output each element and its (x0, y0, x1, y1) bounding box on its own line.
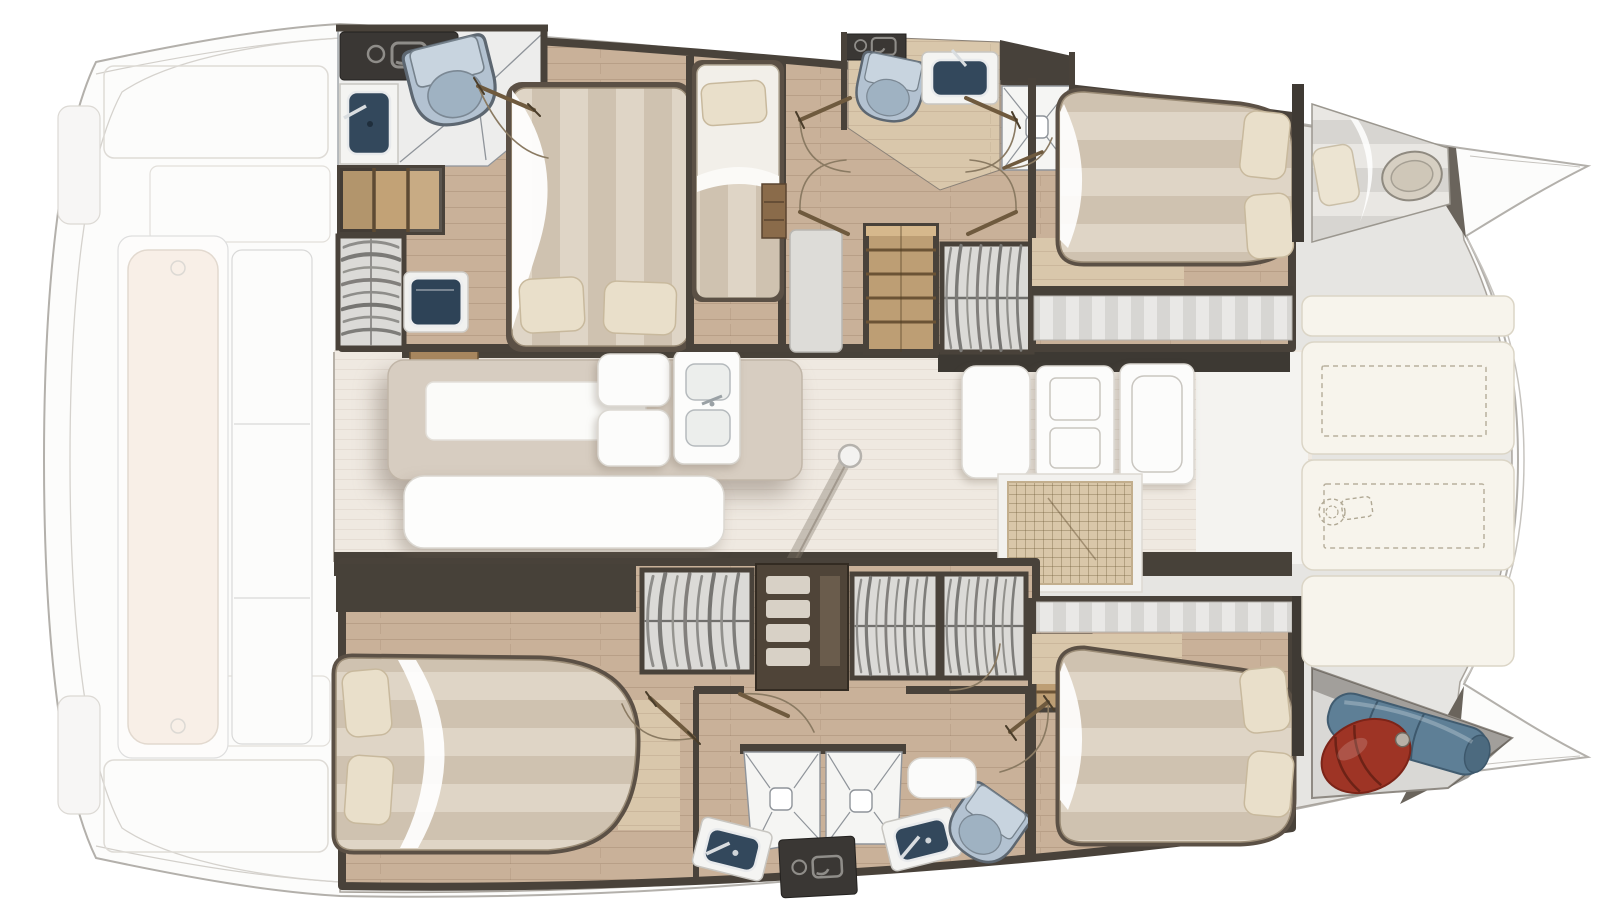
salon-bench (404, 476, 724, 548)
pillow (1239, 110, 1292, 180)
foredeck-lounge (1302, 296, 1514, 666)
wardrobe (942, 244, 1032, 352)
sink-bowl (686, 364, 730, 400)
settee (598, 354, 670, 466)
galley-counters (962, 364, 1194, 484)
sun-pad (1302, 576, 1514, 666)
wardrobes-and-shelves (642, 564, 1026, 690)
bedside-shelf (762, 184, 786, 238)
companionway-steps (340, 168, 442, 232)
side-deck-stripes (1036, 602, 1292, 632)
shower-drain (850, 790, 872, 812)
hull-stairs (866, 226, 936, 352)
pillow (603, 281, 677, 335)
vanity-unit (404, 272, 468, 332)
catamaran-floorplan (0, 0, 1600, 920)
pillow (1244, 192, 1294, 259)
pillow (341, 668, 393, 738)
salon-floor-white (1196, 352, 1308, 564)
aft-cabin-double-bed (506, 82, 692, 352)
utility-counter (778, 836, 857, 898)
seat (908, 758, 976, 798)
interior-layer (0, 0, 1600, 920)
headboard-wall (336, 564, 636, 612)
salon (334, 328, 1312, 592)
pillow (519, 276, 586, 333)
sun-pad (1302, 342, 1514, 454)
sink-bowl (686, 410, 730, 446)
forward-cabin (1028, 78, 1294, 352)
pillow (701, 80, 768, 126)
sun-pad (1302, 460, 1514, 570)
galley-sink-unit (674, 350, 740, 464)
pillow (1239, 666, 1291, 734)
shower-drain (770, 788, 792, 810)
side-deck-stripes (1034, 296, 1292, 340)
pillow (1243, 750, 1294, 818)
wardrobe (338, 236, 404, 348)
sun-pad (1302, 296, 1514, 336)
seat-bench (790, 230, 842, 352)
pillow (344, 754, 395, 825)
bulkhead (1292, 84, 1304, 242)
washbasin (932, 60, 988, 96)
starboard-hull (336, 28, 1450, 352)
port-hull (336, 562, 1304, 898)
